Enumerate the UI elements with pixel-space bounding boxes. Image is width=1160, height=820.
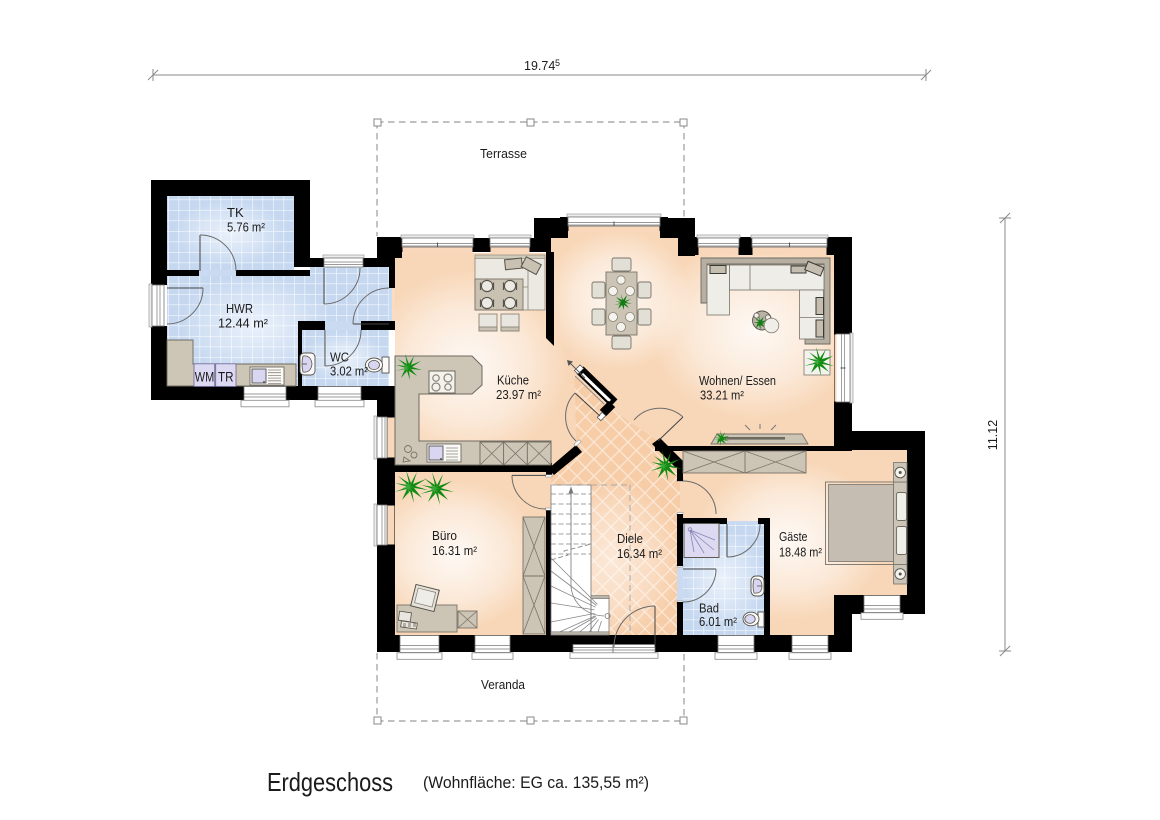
svg-text:Küche: Küche <box>497 373 529 388</box>
svg-text:Veranda: Veranda <box>481 678 525 692</box>
svg-text:WC: WC <box>330 350 349 365</box>
svg-text:Erdgeschoss: Erdgeschoss <box>267 767 393 797</box>
svg-text:TR: TR <box>218 370 234 385</box>
svg-text:Gäste: Gäste <box>779 529 808 544</box>
svg-text:12.44 m²: 12.44 m² <box>218 316 269 331</box>
svg-text:TK: TK <box>227 205 244 220</box>
svg-text:5.76 m²: 5.76 m² <box>227 220 266 235</box>
svg-text:19.74: 19.74 <box>524 59 555 73</box>
svg-text:6.01 m²: 6.01 m² <box>699 614 738 629</box>
svg-text:16.34 m²: 16.34 m² <box>617 546 663 561</box>
svg-text:5: 5 <box>555 58 560 68</box>
svg-text:3.02 m²: 3.02 m² <box>330 364 369 379</box>
svg-text:33.21 m²: 33.21 m² <box>700 388 745 403</box>
svg-text:16.31 m²: 16.31 m² <box>432 543 478 558</box>
svg-text:18.48 m²: 18.48 m² <box>779 545 823 560</box>
svg-text:Büro: Büro <box>432 528 457 543</box>
svg-text:WM: WM <box>195 370 215 385</box>
svg-text:Wohnen/ Essen: Wohnen/ Essen <box>699 373 776 388</box>
svg-text:Diele: Diele <box>617 531 643 546</box>
svg-text:HWR: HWR <box>226 301 253 316</box>
svg-text:23.97 m²: 23.97 m² <box>496 387 542 402</box>
svg-text:Terrasse: Terrasse <box>480 147 527 161</box>
svg-text:(Wohnfläche: EG ca. 135,55 m²: (Wohnfläche: EG ca. 135,55 m²) <box>423 774 649 792</box>
svg-text:11.12: 11.12 <box>986 420 1000 450</box>
